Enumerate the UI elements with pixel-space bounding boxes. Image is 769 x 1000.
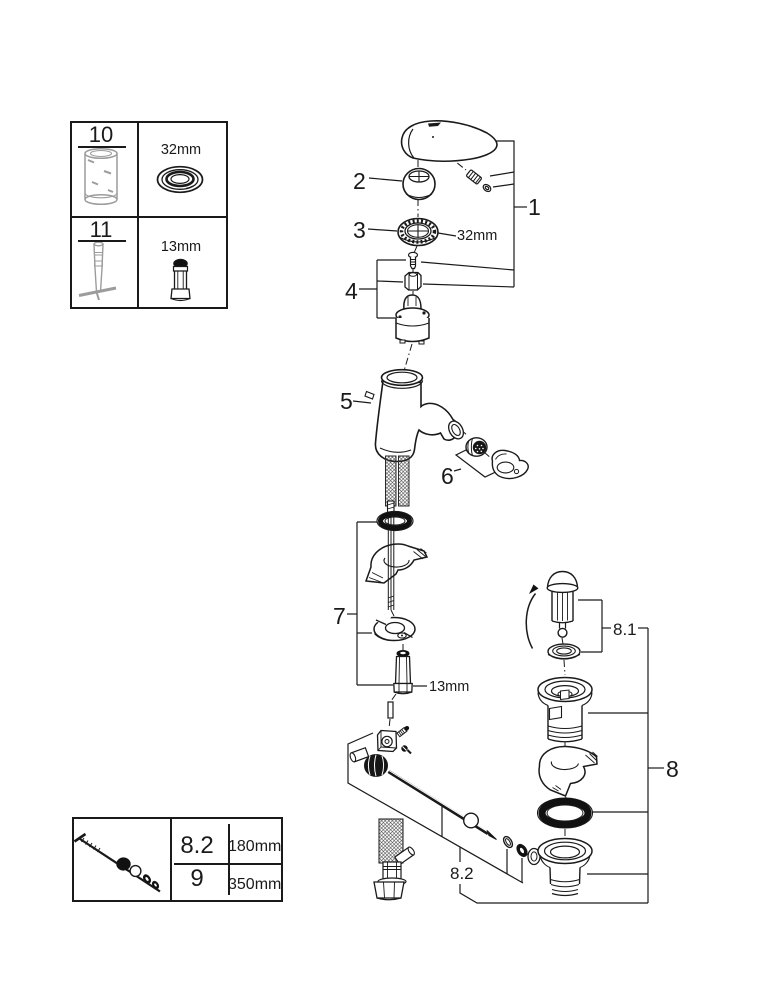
aerator (466, 438, 487, 456)
legend-top-size-13mm: 13mm (137, 240, 225, 255)
drain-wedge-gasket (539, 746, 597, 796)
spout-end-piece (492, 450, 528, 478)
legend-top-underline-11 (78, 240, 126, 242)
callout-3: 3 (353, 219, 366, 242)
callout-4: 4 (345, 280, 358, 303)
faucet-body (365, 370, 466, 462)
callout-8-1: 8.1 (613, 621, 637, 638)
legend-bottom-length-350: 350mm (228, 877, 282, 893)
drain-tailpiece (528, 839, 592, 896)
connection-hoses (386, 456, 410, 506)
legend-top-number-10: 10 (79, 124, 123, 146)
part3-size-label: 32mm (457, 229, 497, 244)
callout-6: 6 (441, 465, 454, 488)
cartridge-screw (409, 252, 418, 268)
legend-top-number-11: 11 (79, 219, 123, 241)
cartridge (396, 295, 429, 344)
handle-screw (466, 170, 492, 193)
rotate-arrow (526, 585, 538, 649)
base-o-ring (377, 512, 413, 531)
callout-leader-lines (347, 141, 664, 903)
cartridge-adapter-nut (405, 273, 421, 291)
legend-top-size-32mm: 32mm (137, 143, 225, 158)
legend-top-underline-10 (78, 146, 126, 148)
escutcheon-ring (398, 219, 438, 246)
callout-2: 2 (353, 170, 366, 193)
callout-7: 7 (333, 605, 346, 628)
drain-o-ring (538, 798, 593, 828)
legend-bottom-length-180: 180mm (228, 839, 282, 855)
callout-8: 8 (666, 758, 679, 781)
callout-8-2: 8.2 (450, 865, 474, 882)
legend-bottom-number-82: 8.2 (170, 834, 224, 858)
handle-cap-ring (403, 169, 435, 200)
drain-flange (538, 678, 592, 742)
plug-seal (548, 644, 580, 659)
parts-diagram-page: 10 32mm 11 13mm 8.2 180mm 9 350mm 1 2 3 … (0, 0, 769, 1000)
pop-up-knob (547, 572, 578, 638)
callout-5: 5 (340, 390, 353, 413)
supply-hose (374, 819, 416, 900)
escutcheon-base-wedge (366, 544, 427, 583)
legend-bottom-number-9: 9 (170, 867, 224, 891)
callout-1: 1 (528, 196, 541, 219)
mounting-nut-13mm (394, 650, 412, 694)
part7-size-label: 13mm (429, 680, 469, 695)
lever-handle (402, 121, 497, 161)
